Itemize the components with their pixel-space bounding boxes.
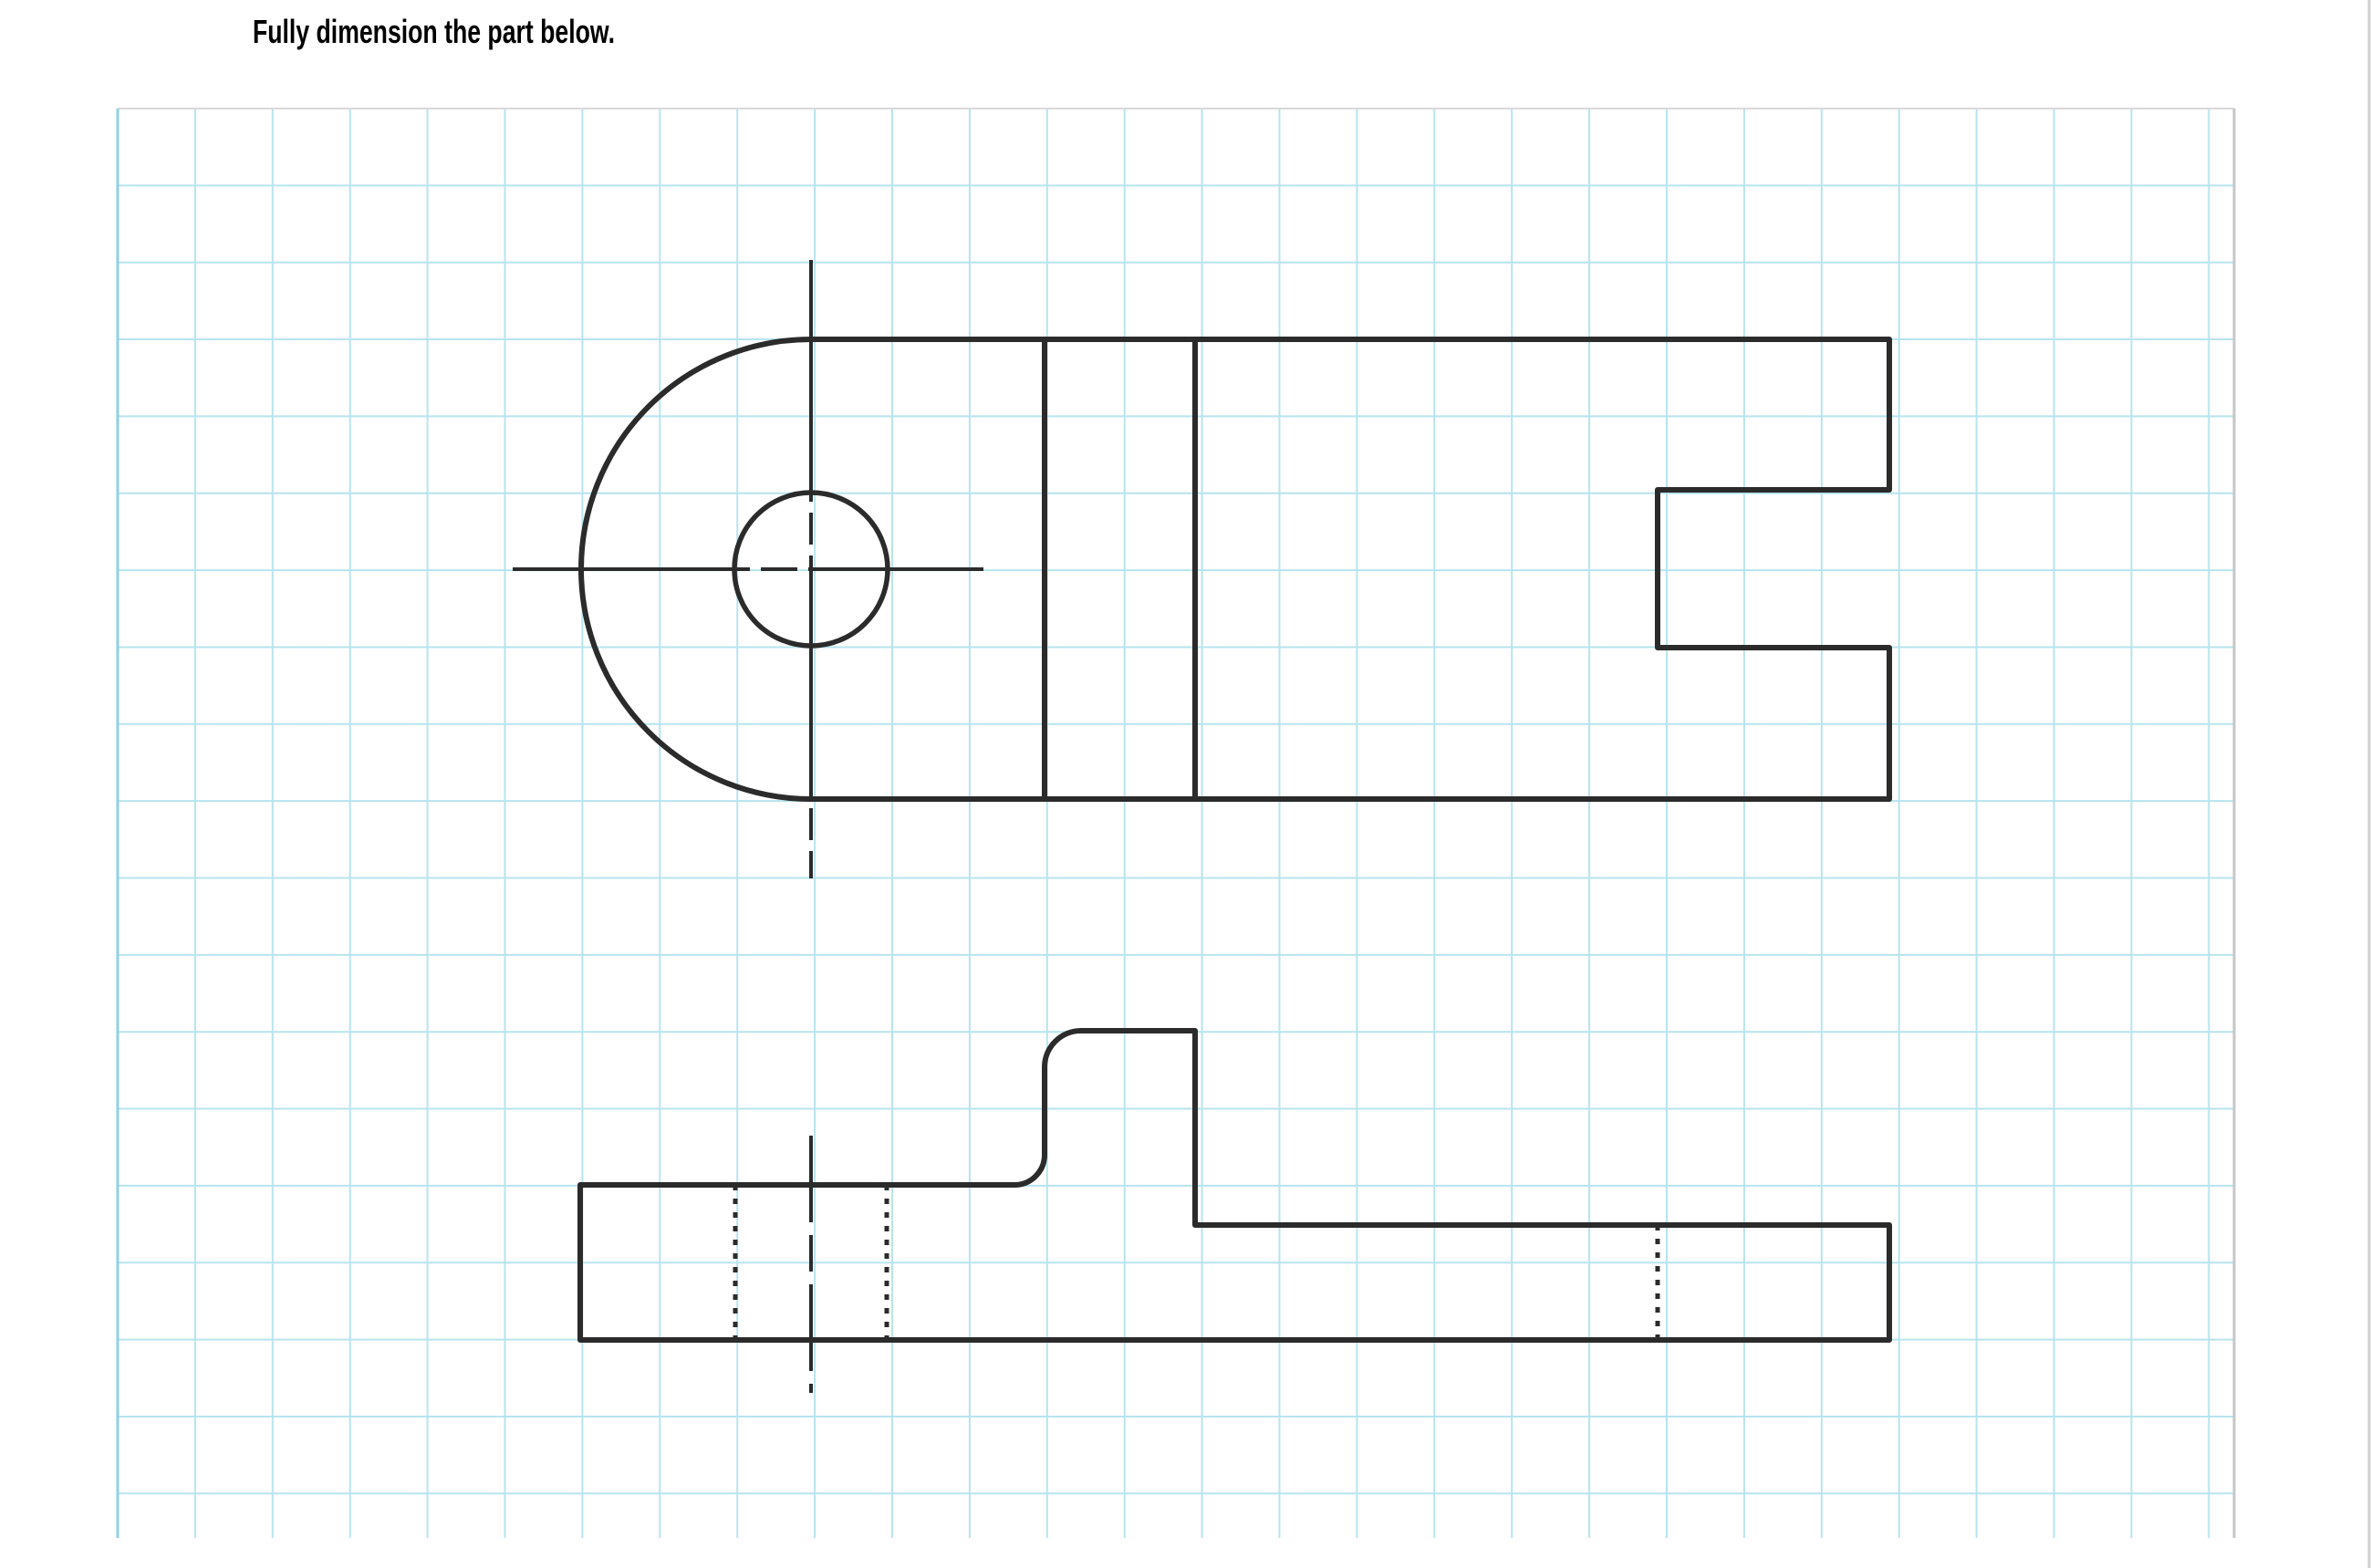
- paper-sheet[interactable]: [118, 109, 2234, 1538]
- drawing-worksheet: Fully dimension the part below.: [0, 0, 2371, 1568]
- instruction-text: Fully dimension the part below.: [253, 13, 615, 50]
- graph-paper[interactable]: [118, 109, 2234, 1538]
